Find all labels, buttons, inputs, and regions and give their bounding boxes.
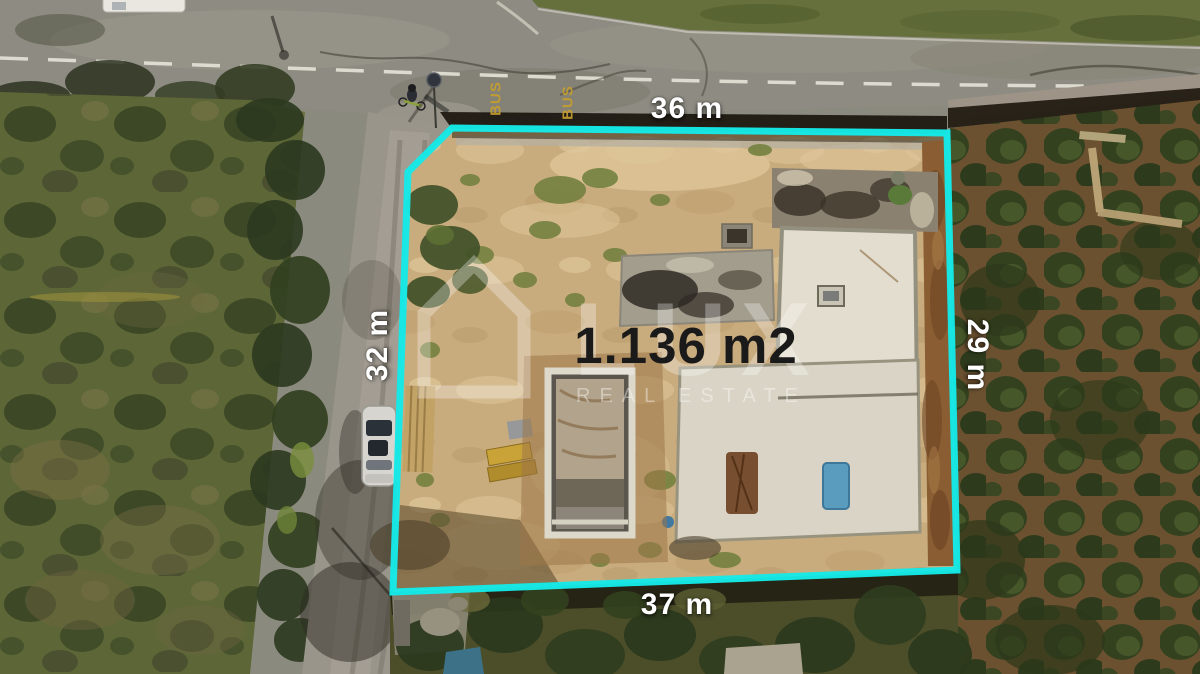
plot-area-label: 1.136 m2 (536, 316, 836, 375)
dimension-label-top: 36 m (627, 92, 747, 126)
bus-road-marking-left: BUS (488, 79, 505, 119)
timber-stack (403, 386, 436, 473)
dimension-label-bottom: 37 m (617, 588, 737, 622)
dimension-label-right: 29 m (960, 295, 994, 415)
parked-car (362, 406, 396, 486)
bus-road-marking-right: BUS (560, 83, 577, 123)
watermark-tagline: REAL ESTATE (576, 386, 807, 406)
white-van (103, 0, 185, 12)
aerial-photo: LUX REAL ESTATE BUS BUS 36 m 32 m 29 m 3… (0, 0, 1200, 674)
dimension-label-left: 32 m (361, 285, 395, 405)
